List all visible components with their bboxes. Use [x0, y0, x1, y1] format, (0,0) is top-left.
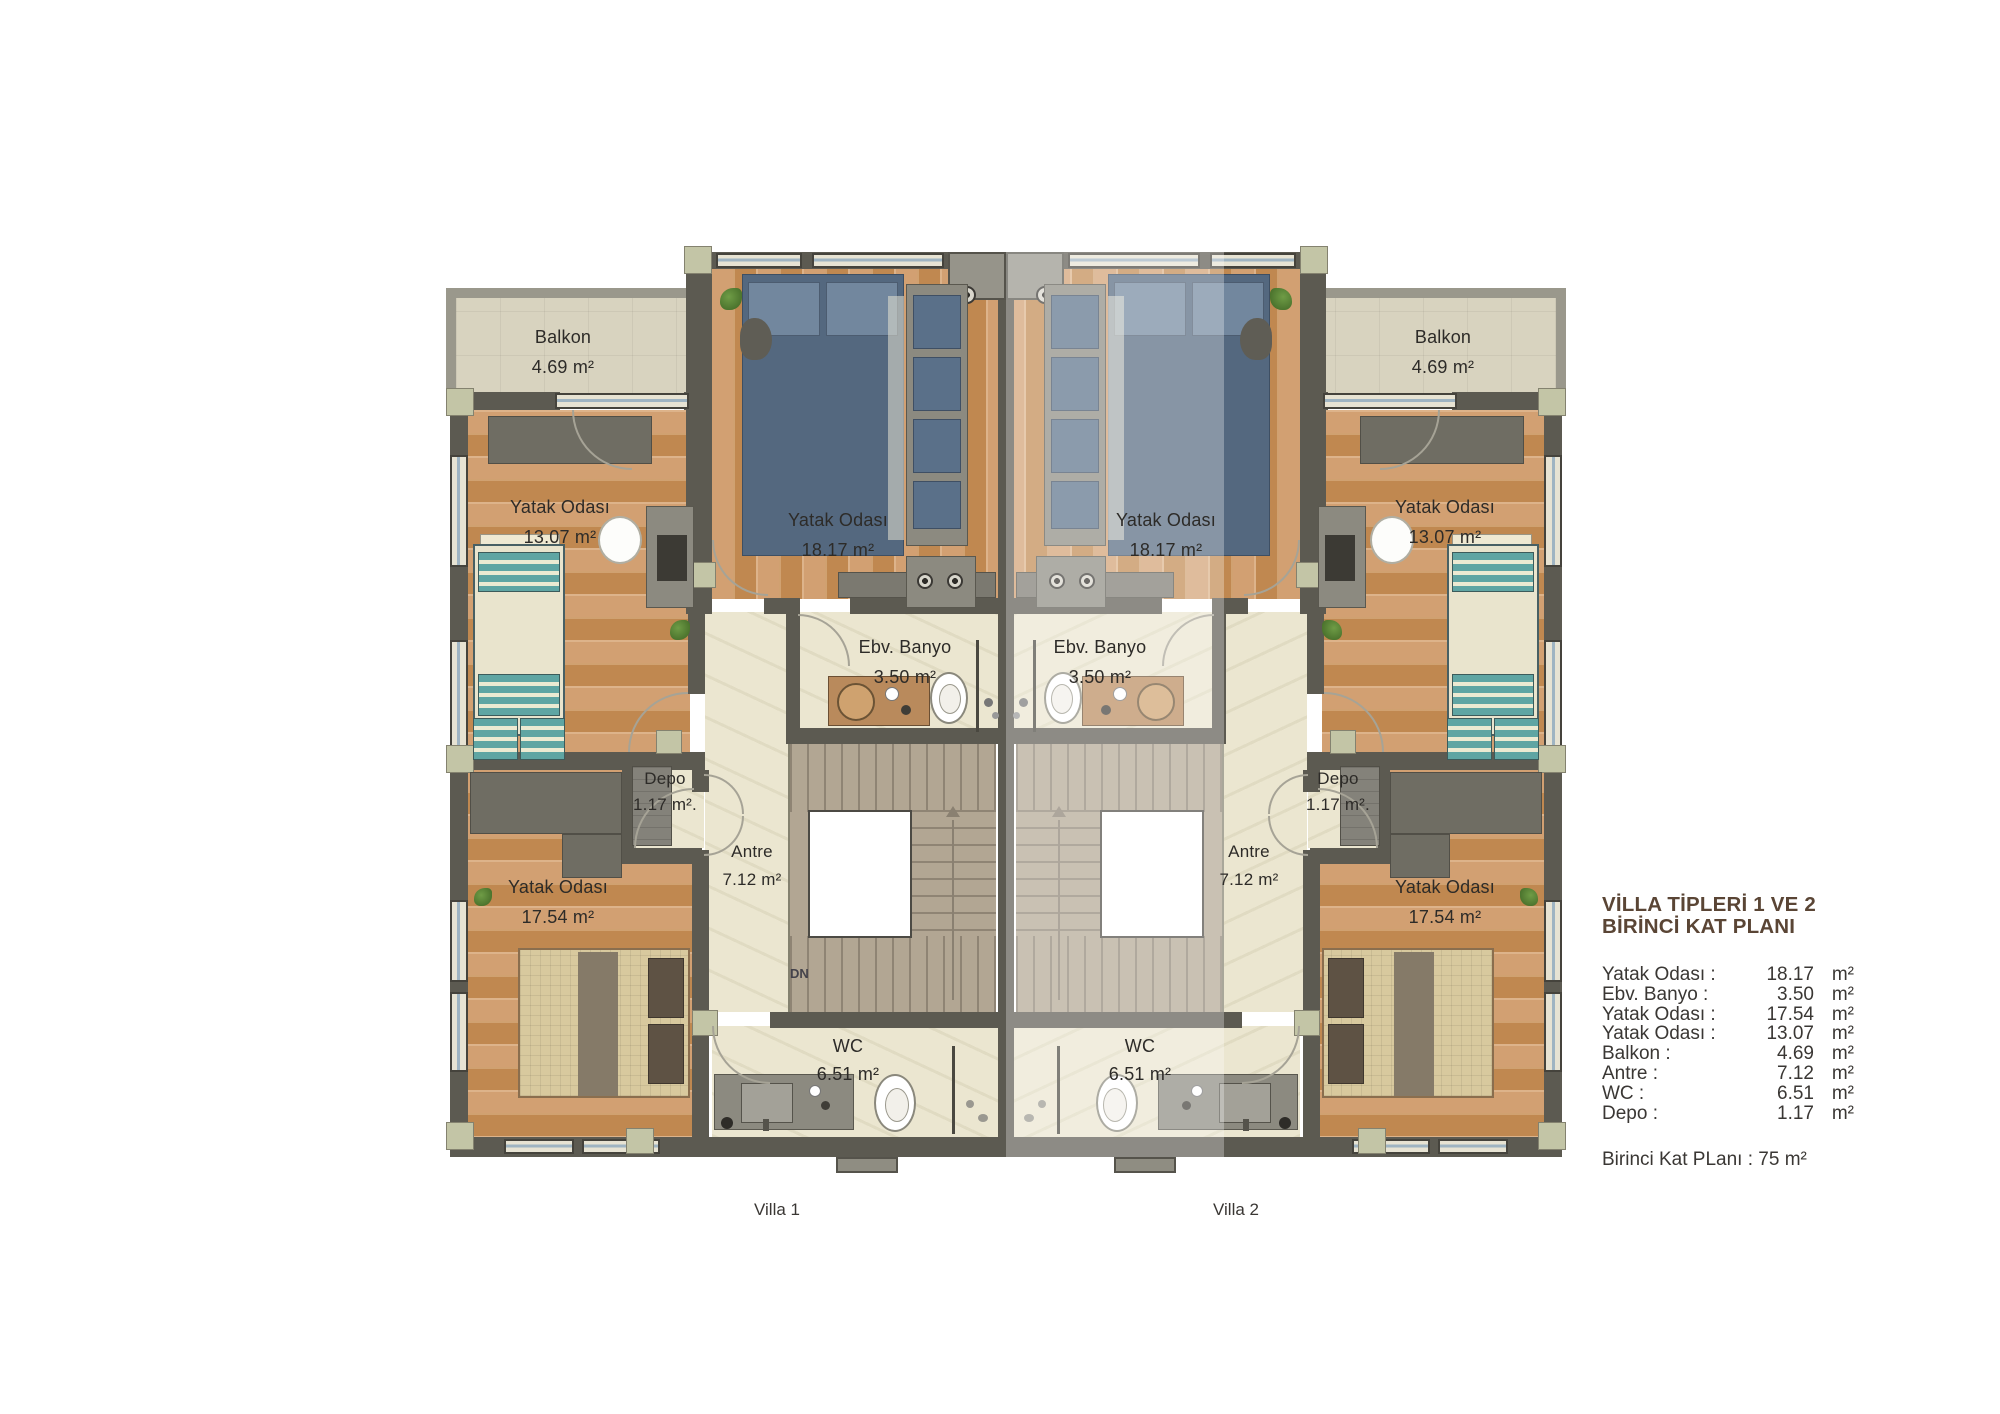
column-pad	[1538, 1122, 1566, 1150]
legend-area: 17.54	[1760, 1005, 1814, 1025]
legend-title-line1: VİLLA TİPLERİ 1 VE 2	[1602, 894, 1854, 916]
bath-bottom-wall	[786, 728, 1006, 744]
column-pad	[446, 1122, 474, 1150]
room-area: 17.54 m²	[1345, 902, 1545, 932]
room-name: Depo	[1238, 766, 1438, 792]
room-area: 7.12 m²	[652, 866, 852, 894]
room-area: 7.12 m²	[1149, 866, 1349, 894]
decor-ring-icon	[917, 573, 933, 589]
sink-icon	[741, 1083, 793, 1123]
room-label-wc-v1: WC 6.51 m²	[748, 1032, 948, 1088]
bed-pillow	[1328, 1024, 1364, 1084]
stair-direction-arrow-icon	[946, 806, 960, 817]
room-label-depo-v2: Depo 1.17 m².	[1238, 766, 1438, 818]
column-pad	[1538, 745, 1566, 773]
area-legend: VİLLA TİPLERİ 1 VE 2 BİRİNCİ KAT PLANI Y…	[1602, 894, 1854, 1171]
bed-sheet-fold	[888, 296, 904, 540]
legend-footer: Birinci Kat PLanı : 75 m²	[1602, 1149, 1854, 1171]
decor-ring-icon	[947, 573, 963, 589]
room-area: 13.07 m²	[1345, 522, 1545, 552]
window-left-3	[1544, 900, 1562, 982]
stair-direction-line	[952, 820, 954, 1000]
legend-room: Depo :	[1602, 1104, 1760, 1124]
legend-room: Antre :	[1602, 1064, 1760, 1084]
toilet-bowl	[885, 1088, 909, 1122]
entry-stoop	[836, 1157, 898, 1173]
room-area: 17.54 m²	[458, 902, 658, 932]
room-name: Ebv. Banyo	[1000, 632, 1200, 662]
legend-unit: m²	[1814, 1084, 1854, 1104]
shower-fitting-icon	[966, 1100, 974, 1108]
foot-cushion	[1447, 718, 1492, 760]
legend-row: Yatak Odası : 13.07 m²	[1602, 1024, 1854, 1044]
legend-unit: m²	[1814, 1064, 1854, 1084]
column-pad	[626, 1128, 654, 1154]
room-label-banyo-v2: Ebv. Banyo 3.50 m²	[1000, 632, 1200, 692]
single-bed	[1447, 544, 1539, 736]
stair-treads-bottom	[790, 936, 996, 1012]
room-name: WC	[748, 1032, 948, 1060]
legend-title-line2: BİRİNCİ KAT PLANI	[1602, 916, 1854, 938]
bed-blanket	[1452, 552, 1534, 592]
room-name: Ebv. Banyo	[805, 632, 1005, 662]
room-label-balkon-v2: Balkon 4.69 m²	[1343, 322, 1543, 382]
stairs-down-label: DN	[790, 966, 809, 981]
legend-unit: m²	[1814, 1005, 1854, 1025]
room-name: WC	[1040, 1032, 1240, 1060]
legend-unit: m²	[1814, 965, 1854, 985]
legend-area: 13.07	[1760, 1024, 1814, 1044]
drain-icon	[821, 1101, 830, 1110]
room-label-yatak18-v2: Yatak Odası 18.17 m²	[1066, 505, 1266, 565]
single-bed	[473, 544, 565, 736]
legend-row: Yatak Odası : 17.54 m²	[1602, 1005, 1854, 1025]
legend-title: VİLLA TİPLERİ 1 VE 2 BİRİNCİ KAT PLANI	[1602, 894, 1854, 938]
column-pad	[1538, 388, 1566, 416]
drain-icon	[901, 705, 911, 715]
villa1-caption: Villa 1	[697, 1200, 857, 1220]
room-area: 6.51 m²	[748, 1060, 948, 1088]
room-area: 13.07 m²	[460, 522, 660, 552]
room-area: 6.51 m²	[1040, 1060, 1240, 1088]
bed-runner	[1394, 952, 1434, 1096]
fixture-icon	[721, 1117, 733, 1129]
room-label-balkon-v1: Balkon 4.69 m²	[463, 322, 663, 382]
legend-rows: Yatak Odası : 18.17 m² Ebv. Banyo : 3.50…	[1602, 965, 1854, 1123]
double-bed	[518, 948, 690, 1098]
wc-partition	[952, 1046, 955, 1134]
decor-rug	[740, 318, 772, 360]
legend-row: WC : 6.51 m²	[1602, 1084, 1854, 1104]
faucet-icon	[763, 1119, 769, 1131]
shower-fitting-icon	[978, 1114, 988, 1122]
legend-room: Balkon :	[1602, 1044, 1760, 1064]
window-top-2	[812, 253, 944, 268]
column-pad	[1358, 1128, 1386, 1154]
room-label-antre-v1: Antre 7.12 m²	[652, 838, 852, 894]
room-name: Yatak Odası	[458, 872, 658, 902]
window-top-1	[716, 253, 802, 268]
legend-room: Yatak Odası :	[1602, 1005, 1760, 1025]
shower-fitting-icon	[984, 698, 993, 707]
balcony-parapet-left	[1556, 288, 1566, 400]
room-area: 18.17 m²	[1066, 535, 1266, 565]
shower-fitting-icon	[992, 712, 999, 719]
room-label-antre-v2: Antre 7.12 m²	[1149, 838, 1349, 894]
column-pad	[446, 388, 474, 416]
room-area: 1.17 m².	[1238, 792, 1438, 818]
window-bottom-1	[1438, 1139, 1508, 1154]
legend-room: Ebv. Banyo :	[1602, 985, 1760, 1005]
legend-room: WC :	[1602, 1084, 1760, 1104]
room-label-yatak17-v1: Yatak Odası 17.54 m²	[458, 872, 658, 932]
bed-runner	[578, 952, 618, 1096]
room-label-depo-v1: Depo 1.17 m².	[565, 766, 765, 818]
legend-row: Antre : 7.12 m²	[1602, 1064, 1854, 1084]
window-left-1	[1544, 455, 1562, 567]
legend-unit: m²	[1814, 985, 1854, 1005]
balcony-parapet-left	[446, 288, 456, 400]
bed-pillow	[648, 1024, 684, 1084]
bed-blanket	[1452, 674, 1534, 716]
room-name: Depo	[565, 766, 765, 792]
room-name: Antre	[652, 838, 852, 866]
room-name: Antre	[1149, 838, 1349, 866]
room-name: Yatak Odası	[460, 492, 660, 522]
window-left-4	[1544, 992, 1562, 1072]
bed-pillow	[1328, 958, 1364, 1018]
sink-icon	[1219, 1083, 1271, 1123]
legend-area: 3.50	[1760, 985, 1814, 1005]
room-label-yatak17-v2: Yatak Odası 17.54 m²	[1345, 872, 1545, 932]
stair-treads-right	[912, 810, 996, 940]
legend-row: Yatak Odası : 18.17 m²	[1602, 965, 1854, 985]
legend-area: 6.51	[1760, 1084, 1814, 1104]
balcony-door-window	[555, 393, 689, 409]
foot-cushion	[1494, 718, 1539, 760]
wc-top-wall-b	[770, 1012, 1006, 1028]
legend-row: Ebv. Banyo : 3.50 m²	[1602, 985, 1854, 1005]
room-area: 18.17 m²	[738, 535, 938, 565]
legend-area: 18.17	[1760, 965, 1814, 985]
decor-rug	[1240, 318, 1272, 360]
room-name: Balkon	[463, 322, 663, 352]
legend-area: 4.69	[1760, 1044, 1814, 1064]
window-left-2	[450, 640, 468, 756]
floor-plan-page: Balkon 4.69 m² Balkon 4.69 m² Yatak Odas…	[0, 0, 2000, 1414]
legend-area: 1.17	[1760, 1104, 1814, 1124]
fixture-icon	[1279, 1117, 1291, 1129]
room-label-yatak13-v1: Yatak Odası 13.07 m²	[460, 492, 660, 552]
room-label-yatak18-v1: Yatak Odası 18.17 m²	[738, 505, 938, 565]
faucet-icon	[1243, 1119, 1249, 1131]
bed-blanket	[478, 674, 560, 716]
bed-blanket	[478, 552, 560, 592]
entry-stoop	[1114, 1157, 1176, 1173]
bed-pillow	[648, 958, 684, 1018]
room-area: 3.50 m²	[1000, 662, 1200, 692]
legend-unit: m²	[1814, 1104, 1854, 1124]
window-left-4	[450, 992, 468, 1072]
column-pad	[1300, 246, 1328, 274]
room-name: Yatak Odası	[1345, 492, 1545, 522]
balcony-parapet-top	[1314, 288, 1566, 298]
room-name: Yatak Odası	[1345, 872, 1545, 902]
monitor	[657, 535, 687, 581]
room-name: Yatak Odası	[1066, 505, 1266, 535]
bench-cushion	[913, 357, 961, 411]
room-label-wc-v2: WC 6.51 m²	[1040, 1032, 1240, 1088]
room-label-banyo-v1: Ebv. Banyo 3.50 m²	[805, 632, 1005, 692]
room-name: Balkon	[1343, 322, 1543, 352]
foot-cushion	[473, 718, 518, 760]
balcony-door-window	[1323, 393, 1457, 409]
column-pad	[446, 745, 474, 773]
stair-treads-top	[790, 742, 996, 812]
legend-room: Yatak Odası :	[1602, 965, 1760, 985]
window-left-2	[1544, 640, 1562, 756]
legend-room: Yatak Odası :	[1602, 1024, 1760, 1044]
legend-row: Depo : 1.17 m²	[1602, 1104, 1854, 1124]
room-area: 4.69 m²	[463, 352, 663, 382]
legend-unit: m²	[1814, 1024, 1854, 1044]
bench-cushion	[913, 419, 961, 473]
balcony-parapet-top	[446, 288, 698, 298]
legend-row: Balkon : 4.69 m²	[1602, 1044, 1854, 1064]
legend-unit: m²	[1814, 1044, 1854, 1064]
room-area: 1.17 m².	[565, 792, 765, 818]
column-pad	[684, 246, 712, 274]
double-bed	[1322, 948, 1494, 1098]
room-name: Yatak Odası	[738, 505, 938, 535]
window-bottom-1	[504, 1139, 574, 1154]
room-area: 4.69 m²	[1343, 352, 1543, 382]
villa2-caption: Villa 2	[1156, 1200, 1316, 1220]
legend-area: 7.12	[1760, 1064, 1814, 1084]
bench-cushion	[913, 295, 961, 349]
room-label-yatak13-v2: Yatak Odası 13.07 m²	[1345, 492, 1545, 552]
foot-cushion	[520, 718, 565, 760]
room-area: 3.50 m²	[805, 662, 1005, 692]
